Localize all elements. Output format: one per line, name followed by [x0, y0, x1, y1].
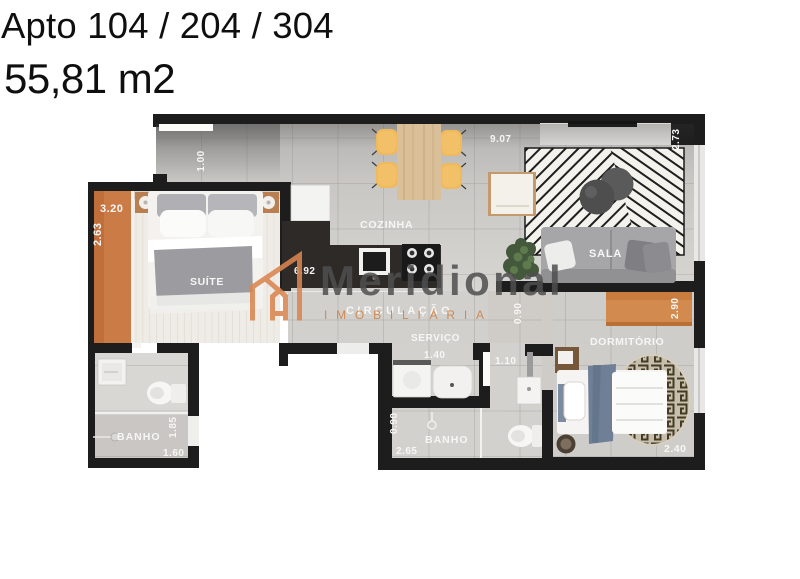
svg-text:9.07: 9.07 [490, 134, 511, 145]
svg-text:SALA: SALA [589, 248, 622, 260]
svg-text:BANHO: BANHO [117, 431, 161, 443]
svg-text:55,81 m2: 55,81 m2 [4, 55, 175, 102]
svg-text:1.60: 1.60 [163, 448, 184, 459]
svg-text:Meridional: Meridional [320, 257, 564, 304]
svg-text:SUÍTE: SUÍTE [190, 275, 224, 288]
svg-text:1.40: 1.40 [424, 350, 445, 361]
svg-text:IMOBILIÁRIA: IMOBILIÁRIA [324, 307, 493, 322]
svg-text:COZINHA: COZINHA [360, 219, 413, 231]
svg-text:0.90: 0.90 [513, 303, 524, 324]
svg-text:1.85: 1.85 [168, 417, 179, 438]
svg-text:1.10: 1.10 [495, 356, 516, 367]
svg-text:BANHO: BANHO [425, 434, 469, 446]
svg-text:2.73: 2.73 [671, 129, 682, 150]
svg-text:2.90: 2.90 [670, 298, 681, 319]
svg-text:0.90: 0.90 [389, 413, 400, 434]
svg-text:Apto 104 / 204 / 304: Apto 104 / 204 / 304 [1, 5, 334, 46]
svg-text:3.20: 3.20 [100, 203, 123, 215]
svg-text:2.63: 2.63 [92, 223, 104, 246]
svg-text:2.40: 2.40 [664, 443, 686, 455]
svg-text:DORMITÓRIO: DORMITÓRIO [590, 335, 664, 348]
svg-text:1.00: 1.00 [196, 150, 207, 171]
svg-text:SERVIÇO: SERVIÇO [411, 333, 460, 344]
svg-text:2.65: 2.65 [396, 446, 417, 457]
